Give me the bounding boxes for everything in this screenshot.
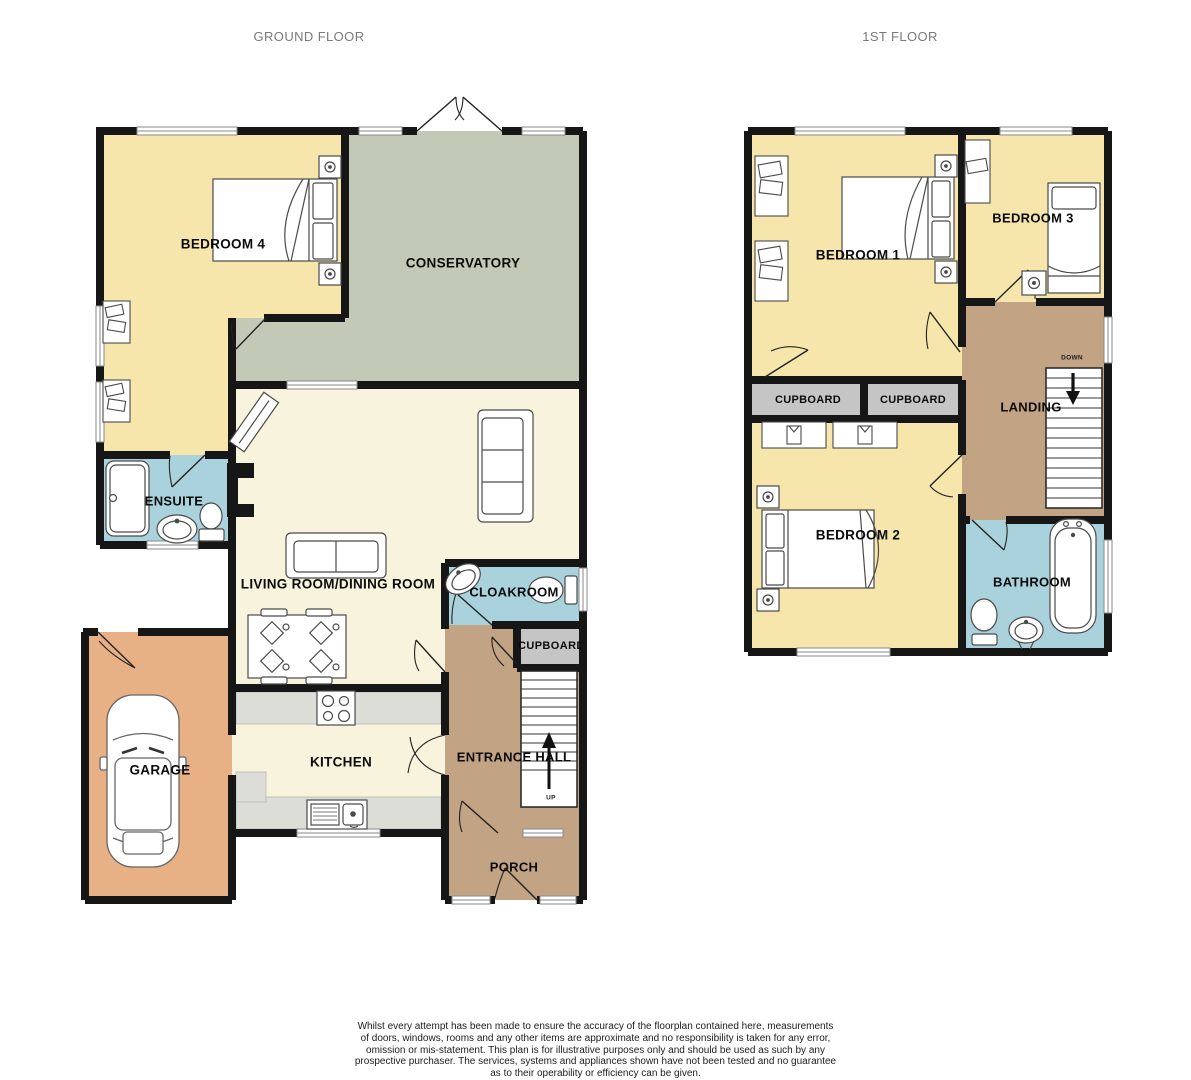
bed3-icon — [1048, 183, 1100, 293]
entrance-stairs — [521, 671, 577, 807]
sofa-right-icon — [478, 410, 533, 522]
car-icon — [100, 695, 186, 867]
bathroom-toilet-icon — [971, 599, 997, 645]
landing-stairs — [1046, 368, 1102, 508]
disclaimer-line: as to their operability or efficiency ca… — [0, 1068, 1191, 1080]
ensuite-toilet-icon — [199, 503, 224, 541]
disclaimer-line: Whilst every attempt has been made to en… — [0, 1021, 1191, 1033]
kitchen-sink-icon — [307, 800, 367, 829]
label-stairs-up: UP — [546, 795, 556, 802]
dining-set-icon — [248, 609, 346, 684]
disclaimer-line: of doors, windows, rooms and any other i… — [0, 1033, 1191, 1045]
floorplan-canvas: GROUND FLOOR 1ST FLOOR — [0, 0, 1191, 1080]
bed2-icon — [762, 510, 879, 588]
label-landing: LANDING — [1000, 400, 1061, 415]
label-conservatory: CONSERVATORY — [406, 256, 521, 271]
label-living: LIVING ROOM/DINING ROOM — [241, 577, 435, 592]
sofa-mid-icon — [286, 533, 386, 578]
label-bedroom4: BEDROOM 4 — [181, 237, 265, 252]
disclaimer-line: prospective purchaser. The services, sys… — [0, 1056, 1191, 1068]
room-conservatory-floor2 — [232, 318, 345, 385]
label-cloakroom: CLOAKROOM — [469, 585, 558, 600]
disclaimer: Whilst every attempt has been made to en… — [0, 1021, 1191, 1080]
label-stairs-down: DOWN — [1061, 355, 1083, 362]
hob-icon — [317, 691, 355, 725]
label-ensuite: ENSUITE — [145, 494, 203, 509]
dresser-icon — [965, 140, 990, 203]
label-bedroom3: BEDROOM 3 — [992, 211, 1073, 226]
label-bedroom2: BEDROOM 2 — [816, 528, 900, 543]
label-kitchen: KITCHEN — [310, 755, 372, 770]
label-porch: PORCH — [490, 860, 538, 875]
shower-icon — [106, 461, 149, 536]
label-cupboard-ground: CUPBOARD — [518, 640, 582, 655]
label-entrance-hall: ENTRANCE HALL — [457, 750, 571, 765]
disclaimer-line: omission or mis-statement. This plan is … — [0, 1045, 1191, 1057]
ensuite-sink-icon — [157, 515, 197, 543]
label-cupboard-right: CUPBOARD — [880, 394, 946, 406]
bedside-lamp-icon — [1022, 271, 1046, 295]
label-bathroom: BATHROOM — [993, 575, 1071, 590]
label-garage: GARAGE — [129, 763, 190, 778]
floorplan-drawing — [0, 0, 1191, 1080]
label-cupboard-left: CUPBOARD — [775, 394, 841, 406]
label-bedroom1: BEDROOM 1 — [816, 248, 900, 263]
